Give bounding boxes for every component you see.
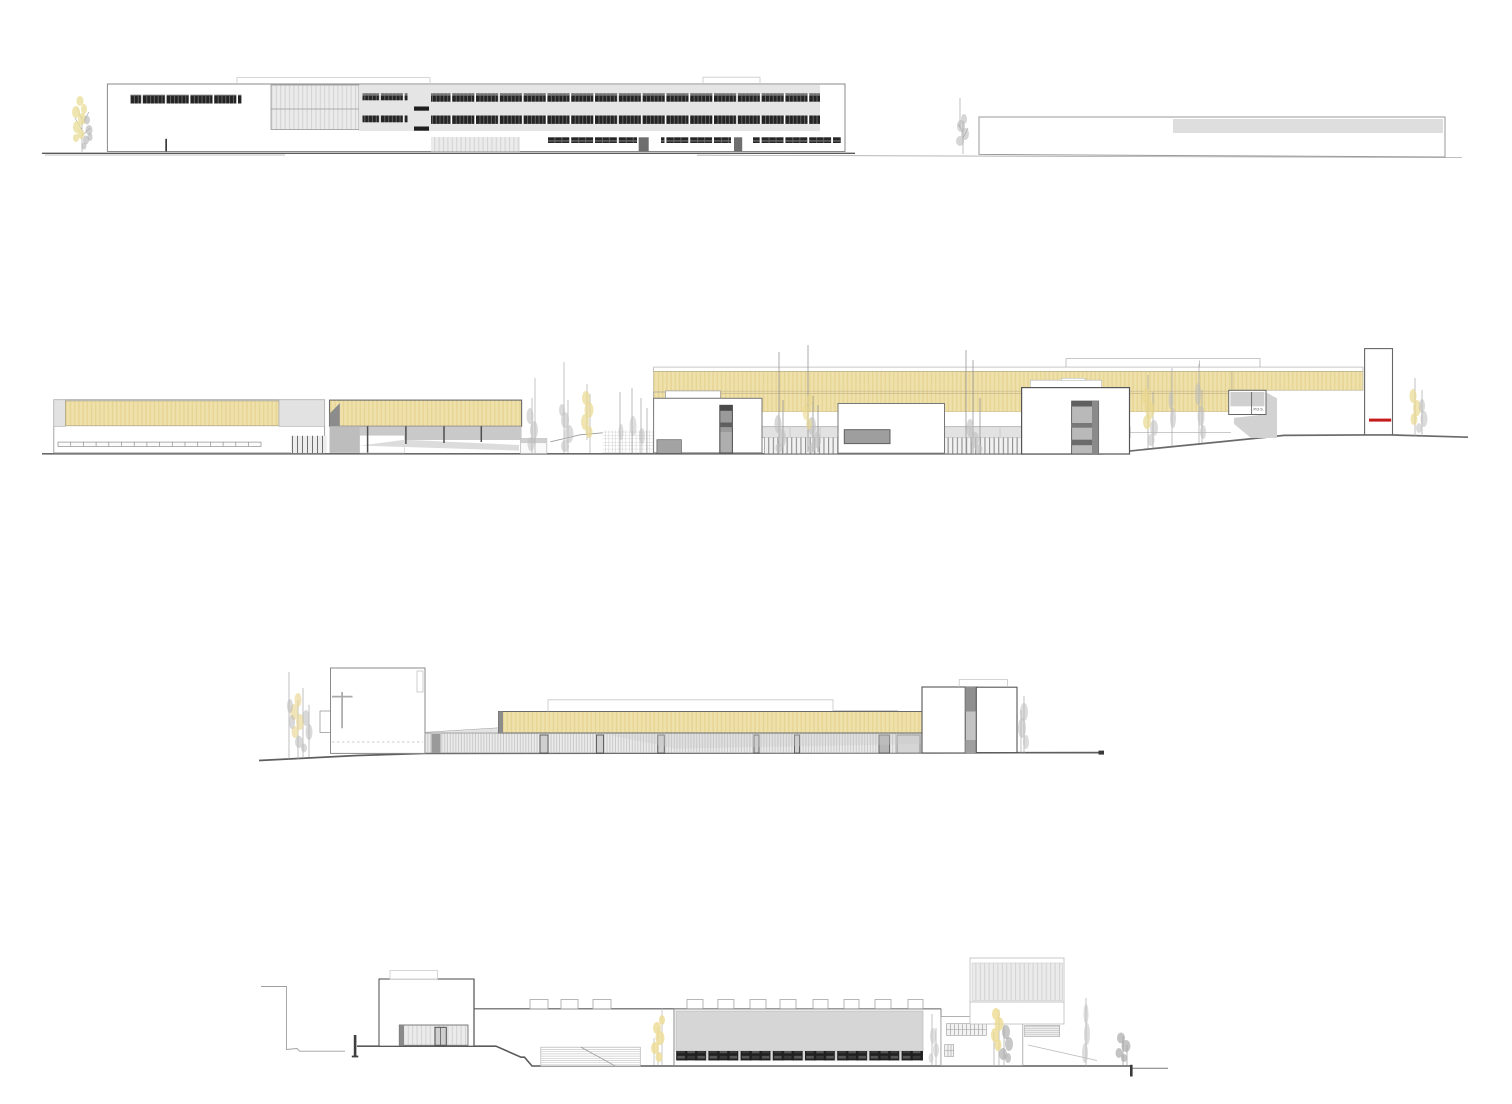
svg-text:P.O.S.: P.O.S. — [1254, 408, 1264, 412]
